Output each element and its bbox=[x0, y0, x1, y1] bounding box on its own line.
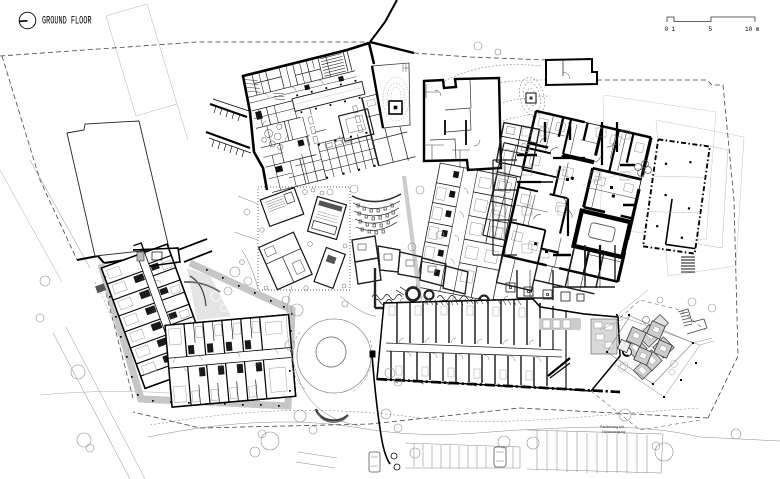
svg-text:0: 0 bbox=[665, 26, 669, 33]
svg-text:10 m: 10 m bbox=[745, 26, 760, 33]
svg-text:Parkierweg mit: Parkierweg mit bbox=[600, 425, 624, 429]
svg-text:1: 1 bbox=[672, 26, 676, 33]
svg-text:Höhenneigung: Höhenneigung bbox=[602, 430, 625, 434]
svg-text:5: 5 bbox=[709, 26, 713, 33]
svg-text:GROUND FLOOR: GROUND FLOOR bbox=[42, 15, 92, 27]
